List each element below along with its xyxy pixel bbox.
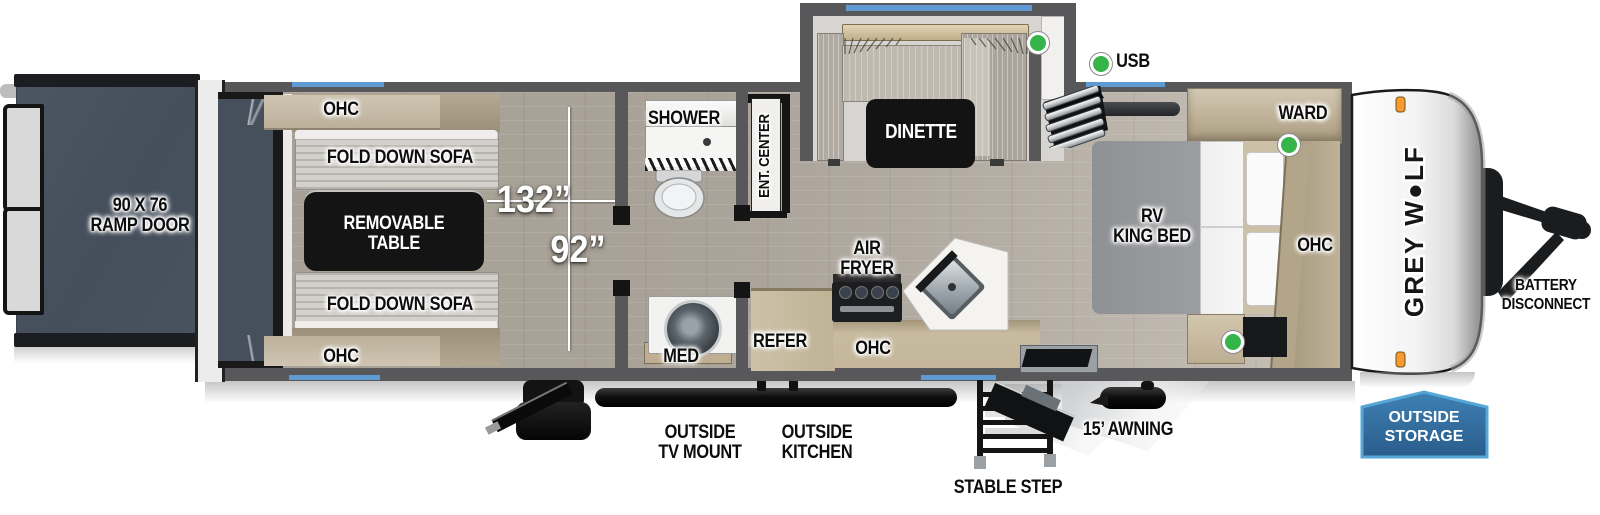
svg-text:GREY W●LF: GREY W●LF xyxy=(1399,145,1429,317)
svg-text:OUTSIDE: OUTSIDE xyxy=(1388,409,1459,426)
svg-text:STORAGE: STORAGE xyxy=(1385,428,1464,445)
